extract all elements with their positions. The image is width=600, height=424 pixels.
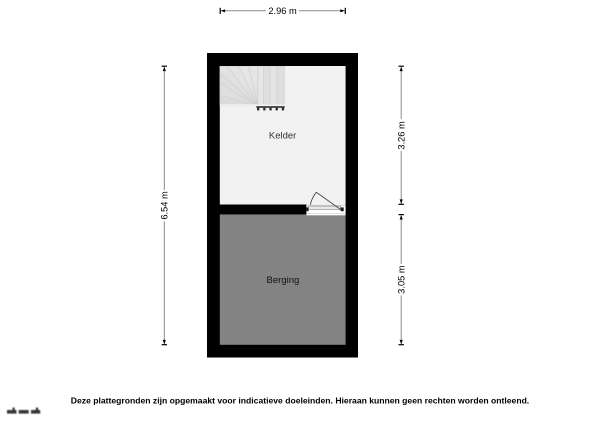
svg-text:Berging: Berging (267, 275, 300, 286)
svg-text:2.96 m: 2.96 m (268, 6, 297, 16)
svg-text:3.26 m: 3.26 m (396, 121, 406, 150)
svg-text:6.54 m: 6.54 m (160, 191, 170, 220)
svg-text:Deze plattegronden zijn opgema: Deze plattegronden zijn opgemaakt voor i… (71, 396, 529, 406)
svg-text:Kelder: Kelder (269, 131, 296, 142)
svg-text:3.05 m: 3.05 m (396, 265, 406, 294)
